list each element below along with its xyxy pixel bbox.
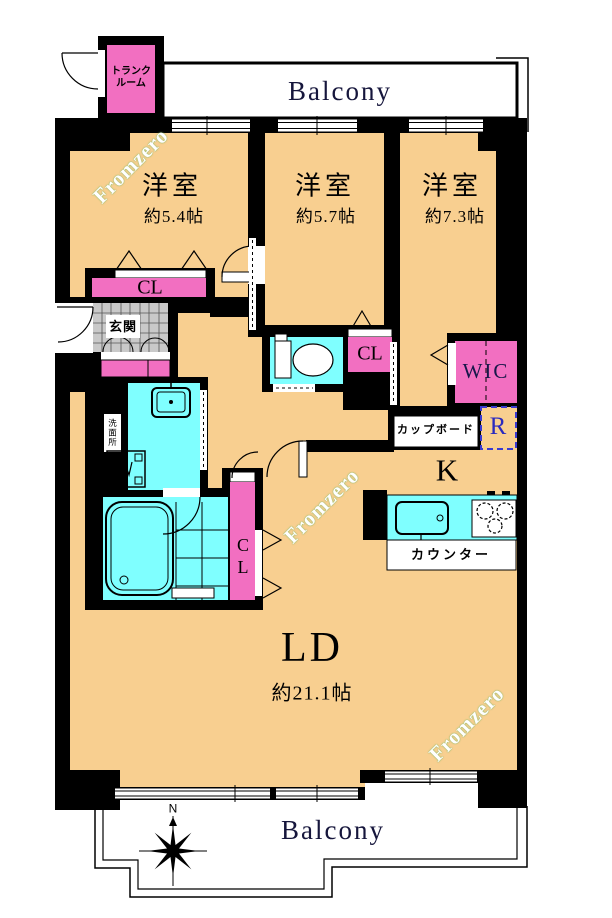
floor-plan: Balcony トランク ルーム 洋室 約5.4帖 洋室 約5.7帖 洋室 約7… bbox=[0, 0, 612, 918]
balcony-top-label: Balcony bbox=[288, 77, 392, 105]
bedroom2-sliding-door bbox=[249, 238, 256, 330]
trunk-room-label-line2: ルーム bbox=[111, 78, 151, 90]
kitchen-label: K bbox=[436, 455, 458, 488]
closet3-label: C L bbox=[237, 534, 249, 578]
living-dining-name: LD bbox=[281, 626, 343, 670]
refrigerator-label: R bbox=[490, 414, 507, 440]
floor-plan-drawing bbox=[0, 0, 612, 918]
bedroom2-name: 洋室 bbox=[295, 172, 355, 199]
cupboard-label: カップボード bbox=[397, 425, 475, 437]
bedroom1-name: 洋室 bbox=[142, 172, 202, 199]
counter-label: カウンター bbox=[411, 548, 491, 562]
walk-in-closet-label: WIC bbox=[463, 360, 510, 382]
bedroom2-size: 約5.7帖 bbox=[296, 208, 356, 226]
living-dining-size: 約21.1帖 bbox=[272, 684, 353, 705]
entrance-label: 玄関 bbox=[109, 320, 137, 334]
bedroom3-name: 洋室 bbox=[422, 172, 482, 199]
closet1-label: CL bbox=[137, 278, 163, 299]
closet3-label-l: L bbox=[237, 556, 249, 578]
bathroom-area bbox=[103, 488, 228, 600]
bedroom3-size: 約7.3帖 bbox=[425, 208, 485, 226]
toilet-room bbox=[270, 334, 343, 392]
trunk-room-label: トランク ルーム bbox=[111, 66, 151, 90]
balcony-bottom-label: Balcony bbox=[281, 816, 385, 844]
compass-north-label: N bbox=[169, 803, 178, 816]
closet2-label: CL bbox=[357, 344, 383, 365]
compass-icon bbox=[139, 816, 207, 886]
closet3-label-c: C bbox=[237, 534, 249, 556]
trunk-room-label-line1: トランク bbox=[111, 66, 151, 78]
bedroom1-size: 約5.4帖 bbox=[144, 208, 204, 226]
washroom-label: 洗面所 bbox=[108, 419, 117, 448]
